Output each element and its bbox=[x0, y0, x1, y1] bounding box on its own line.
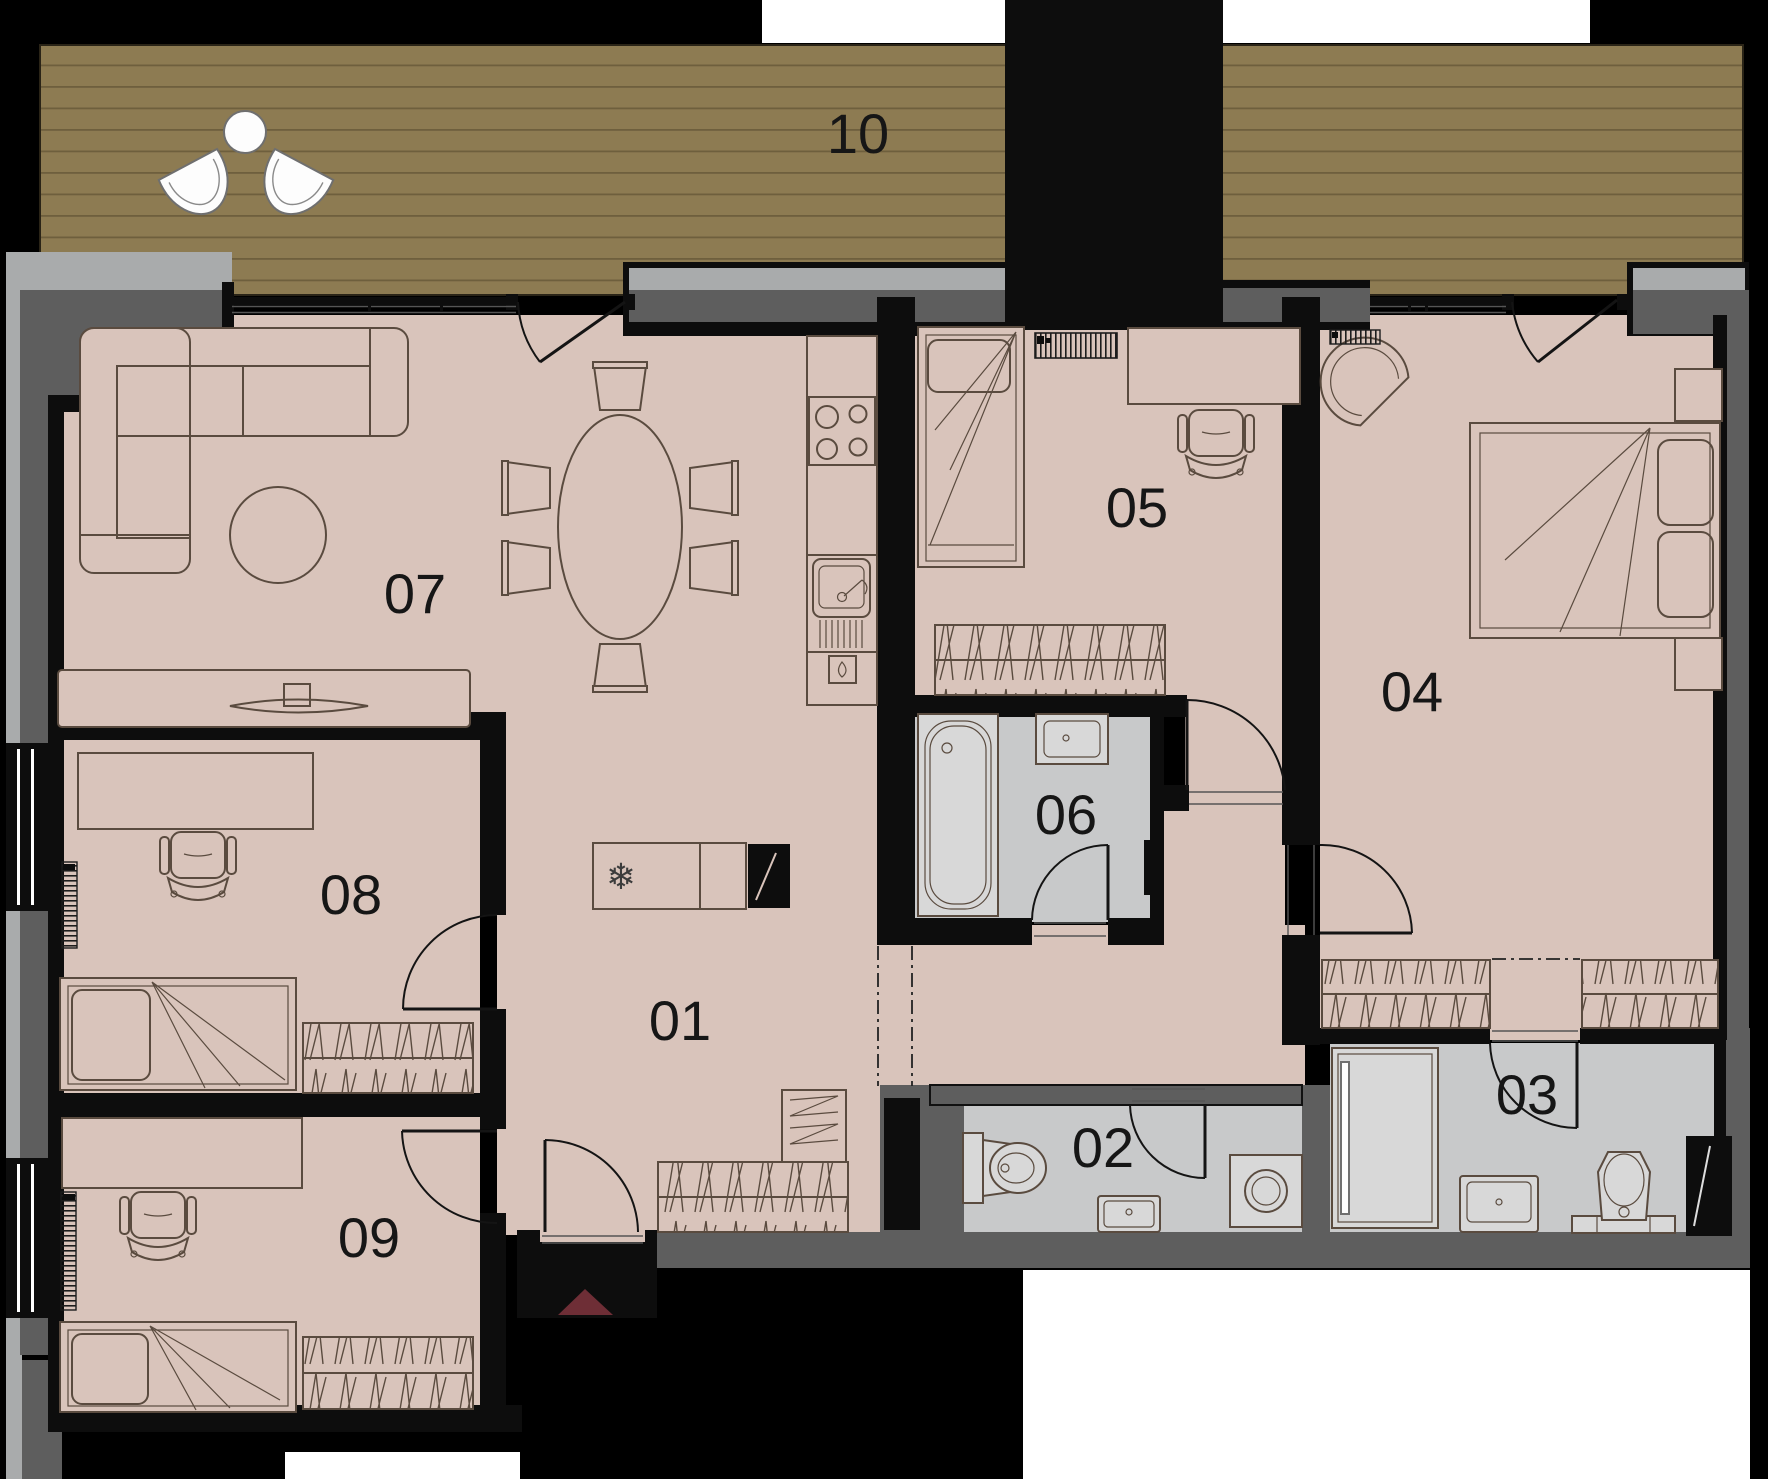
window-room-09 bbox=[6, 1158, 48, 1318]
toilet-tank bbox=[963, 1133, 983, 1203]
dining-chair bbox=[593, 644, 647, 692]
nightstand bbox=[1675, 369, 1722, 421]
dining-chair bbox=[593, 362, 647, 410]
floor-plan-drawing: ❄ bbox=[0, 0, 1768, 1479]
room-label-02: 02 bbox=[1072, 1116, 1134, 1179]
sink bbox=[1460, 1176, 1538, 1232]
desk-chair bbox=[120, 1192, 196, 1260]
room-label-05: 05 bbox=[1106, 476, 1168, 539]
dining-chair bbox=[690, 461, 738, 515]
room-label-03: 03 bbox=[1496, 1063, 1558, 1126]
terrace-room-10 bbox=[40, 45, 1743, 295]
dining-table bbox=[558, 415, 682, 639]
toilet bbox=[1598, 1152, 1650, 1220]
desk-chair bbox=[160, 832, 236, 900]
washing-machine bbox=[1230, 1155, 1302, 1227]
snowflake-icon: ❄ bbox=[606, 857, 636, 898]
shaft bbox=[884, 1098, 920, 1230]
desk bbox=[1128, 328, 1300, 404]
room-label-09: 09 bbox=[338, 1206, 400, 1269]
room-label-08: 08 bbox=[320, 863, 382, 926]
coffee-table bbox=[230, 487, 326, 583]
desk-chair bbox=[1178, 410, 1254, 478]
dining-chair bbox=[690, 541, 738, 595]
radiator bbox=[61, 1192, 76, 1310]
terrace-table bbox=[224, 111, 266, 153]
floor-plan-canvas: ❄ bbox=[0, 0, 1768, 1479]
room-label-04: 04 bbox=[1381, 660, 1443, 723]
bed bbox=[60, 1322, 296, 1412]
bed bbox=[918, 327, 1024, 567]
structure-column bbox=[1005, 0, 1223, 322]
radiator bbox=[62, 862, 77, 948]
tv-sideboard bbox=[58, 670, 470, 727]
radiator bbox=[1035, 333, 1117, 358]
room-label-07: 07 bbox=[384, 562, 446, 625]
room-label-01: 01 bbox=[649, 989, 711, 1052]
room-label-06: 06 bbox=[1035, 783, 1097, 846]
room-label-10: 10 bbox=[827, 102, 889, 165]
dining-chair bbox=[502, 461, 550, 515]
desk bbox=[62, 1118, 302, 1188]
desk bbox=[78, 753, 313, 829]
nightstand bbox=[1675, 638, 1722, 690]
dining-chair bbox=[502, 541, 550, 595]
double-bed bbox=[1470, 423, 1720, 638]
window-room-08 bbox=[6, 743, 48, 911]
